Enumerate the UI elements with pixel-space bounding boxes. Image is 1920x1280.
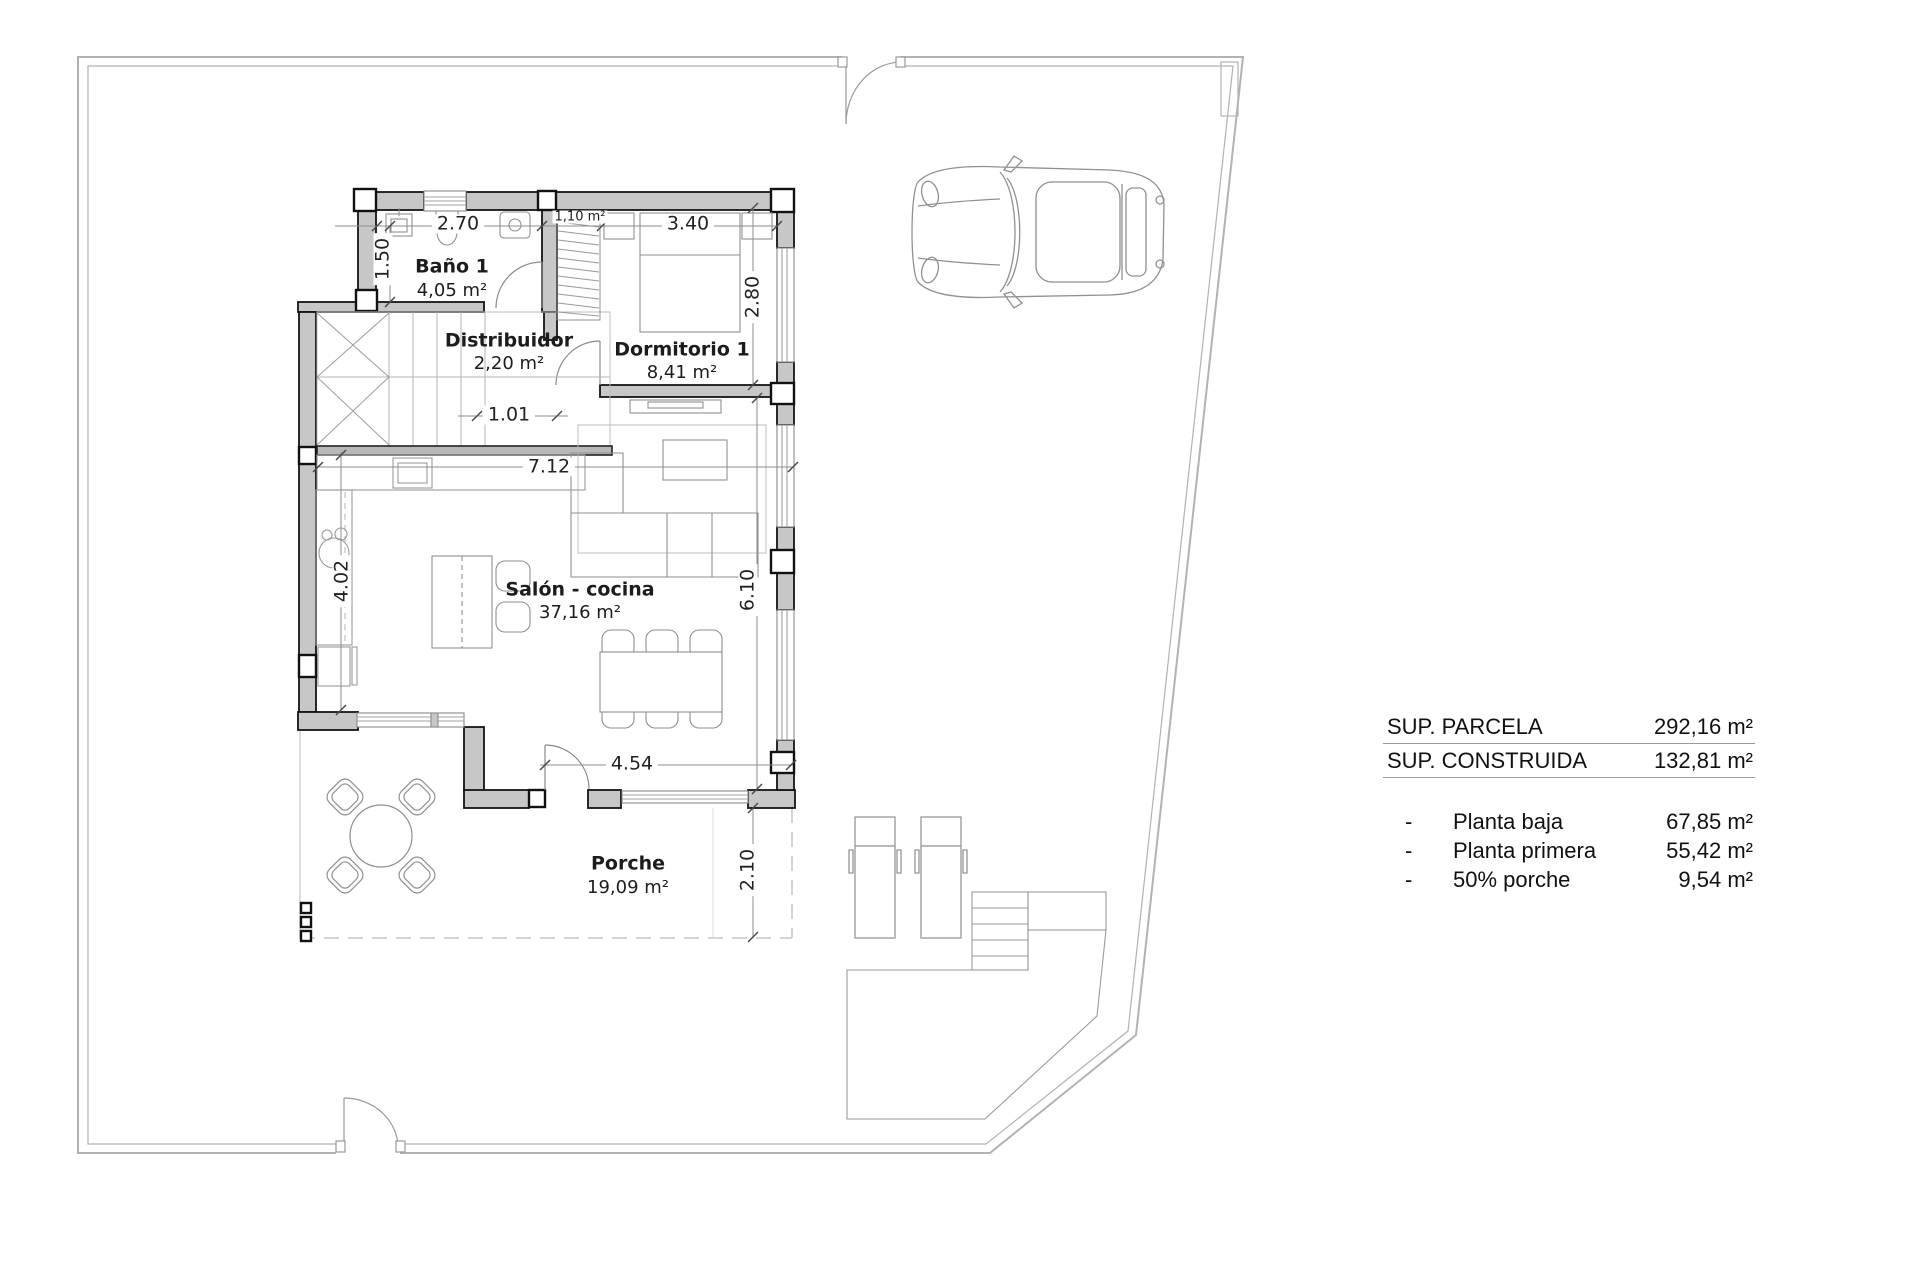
summary-row: SUP. CONSTRUIDA 132,81 m² [1383, 744, 1755, 778]
room-area-distribuidor: 2,20 m² [474, 355, 545, 373]
sofa [571, 453, 758, 577]
room-area-dormitorio: 8,41 m² [647, 364, 718, 382]
dim-280: 2.80 [744, 271, 763, 323]
coffee-table [663, 440, 727, 480]
dim-454: 4.54 [606, 755, 658, 774]
room-area-porche: 19,09 m² [587, 879, 669, 897]
room-label-salon: Salón - cocina [505, 581, 654, 600]
dim-101: 1.01 [483, 406, 535, 425]
summary-value: 292,16 m² [1654, 714, 1753, 740]
porch-table-set [324, 776, 438, 896]
summary-row: SUP. PARCELA 292,16 m² [1383, 710, 1755, 744]
dim-712: 7.12 [523, 458, 575, 477]
summary-items: - Planta baja 67,85 m² - Planta primera … [1383, 806, 1755, 893]
summary-item: - Planta primera 55,42 m² [1383, 835, 1755, 864]
plot-boundary [78, 57, 1243, 1153]
dim-210: 2.10 [739, 844, 758, 896]
item-value: 67,85 m² [1666, 809, 1753, 835]
room-label-porche: Porche [591, 855, 665, 874]
car [912, 156, 1164, 308]
room-area-salon: 37,16 m² [539, 604, 621, 622]
stair-parapet [317, 446, 612, 455]
sun-loungers [849, 817, 967, 938]
summary-label: SUP. CONSTRUIDA [1387, 748, 1587, 774]
surface-summary: SUP. PARCELA 292,16 m² SUP. CONSTRUIDA 1… [1383, 710, 1755, 893]
kitchen-island [432, 556, 530, 648]
kitchen [316, 455, 585, 686]
summary-item: - 50% porche 9,54 m² [1383, 864, 1755, 893]
item-bullet: - [1383, 809, 1435, 835]
pedestrian-gate [336, 1098, 405, 1152]
sideboard [630, 400, 721, 413]
item-value: 55,42 m² [1666, 838, 1753, 864]
item-bullet: - [1383, 838, 1435, 864]
wardrobe [557, 212, 600, 320]
fridge [318, 647, 350, 686]
item-label: Planta primera [1435, 838, 1666, 864]
dining-table [600, 652, 722, 712]
entry-gate [838, 57, 905, 124]
summary-item: - Planta baja 67,85 m² [1383, 806, 1755, 835]
room-label-bano: Baño 1 [415, 258, 489, 277]
porch-posts [301, 903, 311, 941]
dining-set [600, 630, 722, 728]
stool [496, 602, 530, 632]
dim-402: 4.02 [333, 555, 352, 607]
item-label: Planta baja [1435, 809, 1666, 835]
summary-value: 132,81 m² [1654, 748, 1753, 774]
dim-150: 1.50 [374, 233, 393, 285]
floor-plan-page: Baño 1 4,05 m² Distribuidor 2,20 m² Dorm… [0, 0, 1920, 1280]
dim-610: 6.10 [739, 564, 758, 616]
floor-plan-drawing [0, 0, 1920, 1280]
item-bullet: - [1383, 867, 1435, 893]
room-area-bano: 4,05 m² [417, 282, 488, 300]
bidet [500, 212, 530, 238]
dim-270: 2.70 [432, 215, 484, 234]
rug [578, 425, 766, 553]
room-label-dormitorio: Dormitorio 1 [614, 341, 749, 360]
item-label: 50% porche [1435, 867, 1678, 893]
summary-label: SUP. PARCELA [1387, 714, 1543, 740]
porch-outline [300, 730, 792, 938]
room-label-distribuidor: Distribuidor [445, 332, 573, 351]
outdoor-steps [972, 892, 1106, 970]
item-value: 9,54 m² [1678, 867, 1753, 893]
room-area-armario: 1,10 m² [553, 211, 608, 224]
dim-340: 3.40 [662, 215, 714, 234]
